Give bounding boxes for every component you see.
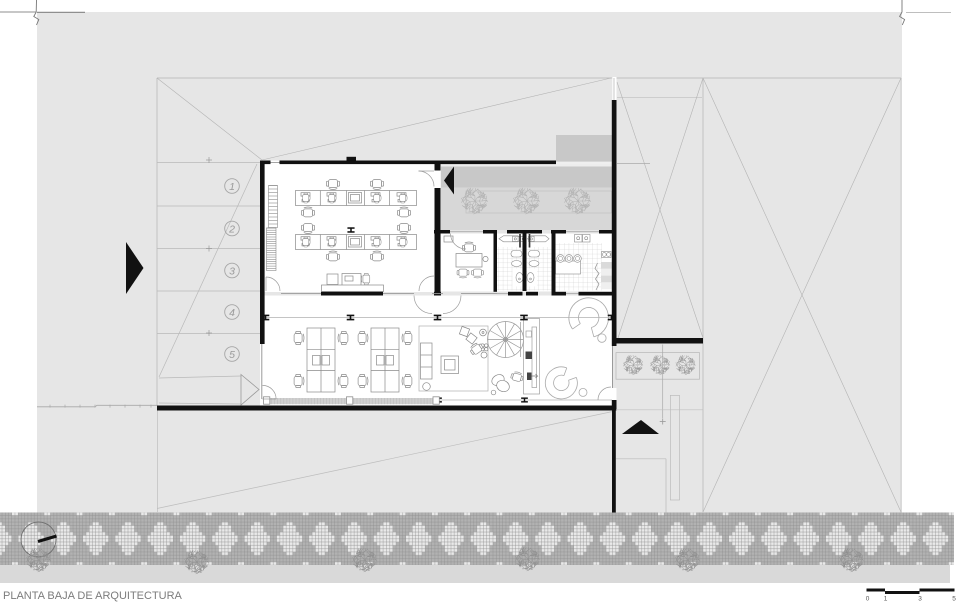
- svg-text:0: 0: [866, 596, 870, 603]
- svg-text:3: 3: [229, 265, 235, 277]
- svg-text:5: 5: [229, 349, 235, 361]
- svg-text:1: 1: [884, 596, 888, 603]
- svg-text:5: 5: [952, 596, 956, 603]
- svg-text:1: 1: [229, 181, 235, 193]
- svg-text:PLANTA BAJA DE ARQUITECTURA: PLANTA BAJA DE ARQUITECTURA: [3, 590, 183, 602]
- svg-text:2: 2: [228, 223, 235, 235]
- svg-text:4: 4: [229, 307, 235, 319]
- svg-text:3: 3: [918, 596, 922, 603]
